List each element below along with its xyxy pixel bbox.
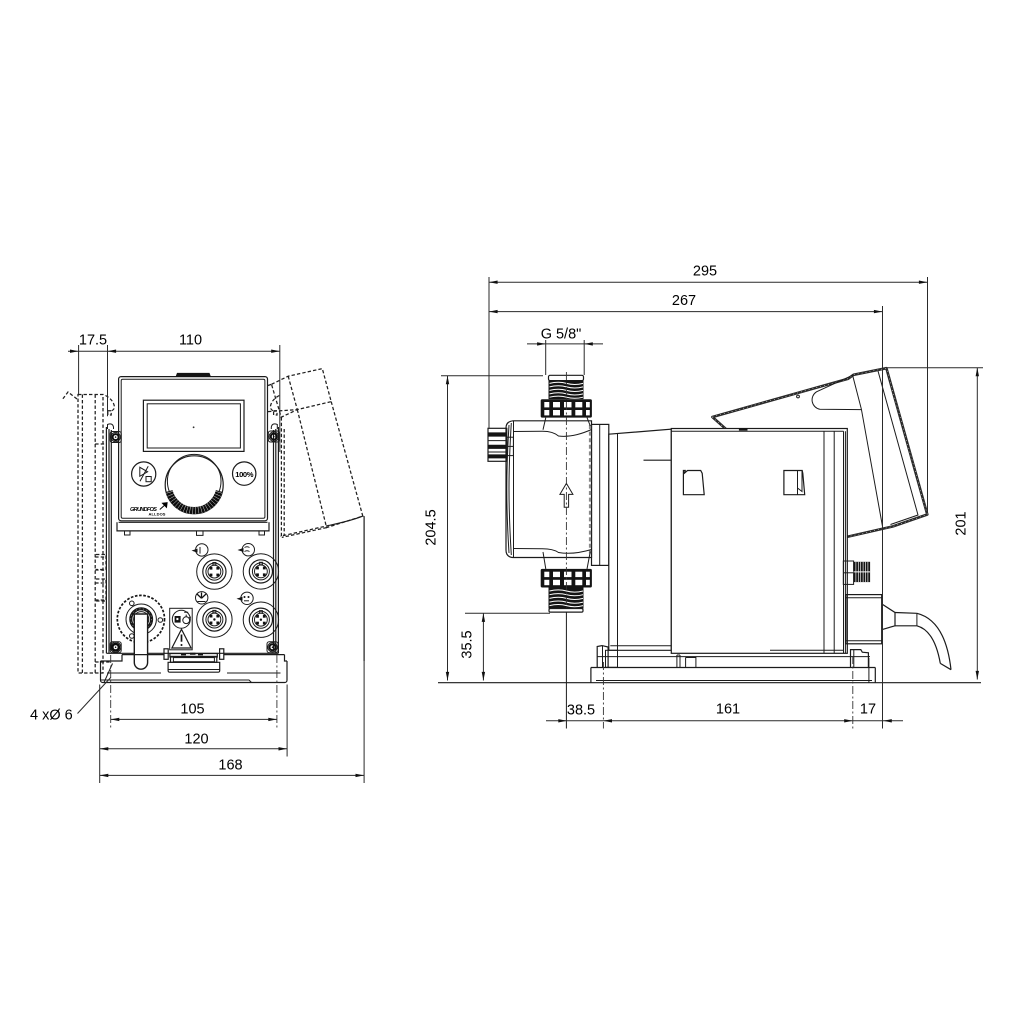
svg-text:105: 105 [180,702,204,718]
svg-text:168: 168 [218,758,242,774]
svg-text:267: 267 [672,293,696,309]
svg-text:G 5/8": G 5/8" [541,326,582,342]
svg-text:38.5: 38.5 [567,702,595,718]
svg-text:4 xØ 6: 4 xØ 6 [30,708,73,724]
svg-text:120: 120 [184,732,208,748]
svg-text:100%: 100% [235,470,253,479]
svg-text:110: 110 [179,333,202,349]
svg-text:ALLDOS: ALLDOS [149,512,166,517]
svg-text:295: 295 [693,264,717,280]
svg-text:201: 201 [954,511,970,535]
svg-text:161: 161 [716,702,740,718]
svg-text:35.5: 35.5 [460,630,476,658]
svg-text:17.5: 17.5 [79,333,107,349]
svg-text:204.5: 204.5 [424,509,440,545]
svg-text:17: 17 [860,702,876,718]
